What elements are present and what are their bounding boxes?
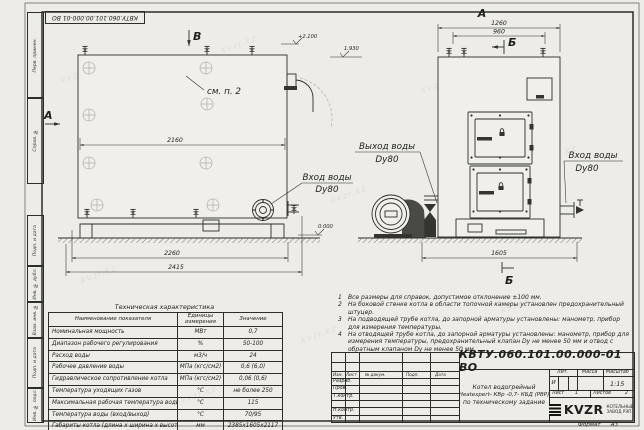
scale-value: 1:15 (610, 380, 624, 388)
doc-number: КВТУ.060.101.00.000-01 ВО (459, 353, 634, 370)
frame-box-perv-primen: Перв. примен. (27, 12, 44, 99)
frame-box-vzam-inv: Взам. инв. № (27, 301, 44, 339)
hinge (528, 199, 532, 205)
sheets-label: Листов (593, 391, 611, 396)
sheet-label: Лист (552, 391, 564, 396)
flue-outlet (284, 74, 332, 128)
dim-1605: 1605 (491, 250, 507, 257)
frame-box-inv-podl: Инв. № подл. (27, 387, 44, 423)
spec-table-title: Техническая характеристика (48, 303, 281, 311)
section-b-top-label: Б (508, 36, 516, 49)
outlet-water-label: Выход воды (359, 142, 415, 152)
row-razrab: Разраб. (333, 379, 352, 384)
spec-cell: Температура уходящих газов (49, 386, 178, 398)
row-nkontr: Н.контр. (333, 408, 354, 413)
spec-cell: 50-100 (224, 339, 282, 351)
spec-table: Наименование показателя Единицы измерени… (48, 312, 283, 430)
elevation-mid: 1.930 (344, 46, 360, 52)
mass-label: Масса (582, 370, 597, 375)
spec-cell: 2385х1605х2117 (224, 421, 282, 430)
spec-cell: % (178, 339, 224, 351)
row-utv: Утв. (333, 416, 343, 421)
frame-box-inv-dubl: Инв. № дубл. (27, 265, 44, 303)
dim-2260: 2260 (164, 250, 180, 257)
spec-cell: Номинальная мощность (49, 327, 178, 339)
side-stub-valve (287, 201, 299, 216)
spec-cell: 70/95 (224, 410, 282, 422)
spec-cell: Габариты котла (длина х ширина х высота) (49, 421, 178, 430)
spec-cell: 0,6 (6,0) (224, 362, 282, 374)
view-v-label: В (193, 30, 201, 43)
product-title: Котел водогрейный Heatexpert- КВр -0,7- … (459, 369, 549, 422)
spec-header: Значение (224, 313, 282, 327)
lit-label: Лит. (557, 370, 568, 375)
ground (58, 238, 582, 243)
spec-cell: МПа (кгс/см2) (178, 362, 224, 374)
title-block: Изм. Лист № докум. Подп. Дата Разраб. Пр… (331, 352, 635, 423)
dim-960: 960 (493, 29, 505, 36)
blower-fan (372, 195, 426, 238)
hinge (528, 178, 532, 184)
outlet-dn-label: Dy80 (375, 155, 399, 165)
dim-2415: 2415 (168, 264, 184, 271)
doc-number-top-box: КВТУ.060.101.00.000-01 ВО (45, 11, 145, 24)
hinge (530, 145, 534, 151)
frame-box-sprav-no: Справ. № (27, 97, 44, 184)
col-list: Лист (346, 372, 357, 377)
notes-list: 1Все размеры для справок, допустимое отк… (338, 294, 632, 353)
view-a-label: А (477, 7, 487, 20)
sheet-value: 1 (575, 391, 578, 396)
dim-2160: 2160 (167, 137, 183, 144)
spec-cell: МПа (кгс/см2) (178, 374, 224, 386)
note-item: 1Все размеры для справок, допустимое отк… (338, 294, 632, 301)
spec-cell: 24 (224, 351, 282, 363)
spec-cell: 115 (224, 398, 282, 410)
company-logo: KVZR КОТЕЛЬНЫЙ ЗАВОД РЭП (549, 397, 634, 422)
spec-cell: Рабочее давление воды (49, 362, 178, 374)
company-name: КОТЕЛЬНЫЙ ЗАВОД РЭП (607, 405, 634, 415)
row-prov: Пров. (333, 386, 347, 391)
doc-number-top: КВТУ.060.101.00.000-01 ВО (52, 14, 138, 21)
safety-valve-icon (249, 46, 255, 55)
format-label: Формат А3 (578, 422, 618, 428)
section-b-bottom-label: Б (505, 274, 513, 287)
inlet-pipe (560, 200, 584, 218)
spec-cell: Расход воды (49, 351, 178, 363)
hinge (530, 124, 534, 130)
section-a-label: А (43, 109, 53, 122)
door-handle (479, 191, 494, 195)
note-item: 2На боковой стенке котла в области топоч… (338, 301, 632, 316)
dim-1260: 1260 (491, 20, 507, 27)
frame-box-podp-data-1: Подп. и дата (27, 215, 44, 267)
spec-cell: 0,06 (0,6) (224, 374, 282, 386)
spec-cell: МВт (178, 327, 224, 339)
col-izm: Изм. (333, 372, 343, 377)
spec-cell: не более 250 (224, 386, 282, 398)
spec-header: Наименование показателя (49, 313, 178, 327)
col-dokum: № докум. (365, 372, 386, 377)
spec-cell: °С (178, 386, 224, 398)
kvzr-logo-text: KVZR (564, 402, 604, 417)
spec-cell: Гидравлическое сопротивление котла (49, 374, 178, 386)
inlet-water-label: Вход воды (302, 173, 351, 183)
spec-cell: 0,7 (224, 327, 282, 339)
elevation-zero: 0.000 (318, 224, 334, 230)
frame-box-podp-data-2: Подп. и дата (27, 337, 44, 389)
col-data: Дата (435, 372, 446, 377)
scale-label: Масштаб (606, 370, 629, 375)
spec-cell: °С (178, 410, 224, 422)
inlet-dn-label: Dy80 (315, 185, 339, 195)
spec-cell: Температура воды (вход/выход) (49, 410, 178, 422)
elevation-top: +2.100 (298, 34, 318, 40)
row-tkontr: Т.контр. (333, 394, 354, 399)
outlet-pipe (424, 196, 438, 237)
spec-cell: м3/ч (178, 351, 224, 363)
inlet-water-label-right: Вход воды (568, 151, 617, 161)
col-podp: Подп. (406, 372, 419, 377)
note-item: 3На подводящей трубе котла, до запорной … (338, 316, 632, 331)
door-handle (477, 137, 492, 141)
spec-cell: Максимальная рабочая температура воды (49, 398, 178, 410)
left-view-side (78, 46, 332, 238)
drawing-sheet: kvzr.kz kvzr.kz kvzr.kz kvzr.kz kvzr.kz … (0, 0, 644, 430)
spec-cell: мм (178, 421, 224, 430)
safety-valve-icon (82, 46, 88, 55)
inlet-dn-label-right: Dy80 (575, 164, 599, 174)
kvzr-logo-mark-icon (549, 404, 561, 416)
spec-header: Единицы измерения (178, 313, 224, 327)
spec-cell: Диапазон рабочего регулирования (49, 339, 178, 351)
lit-value: И (552, 380, 556, 386)
safety-valve-icon (204, 46, 210, 55)
sheets-value: 2 (625, 391, 628, 396)
base-skid (80, 220, 284, 238)
see-note-callout: см. п. 2 (207, 87, 241, 97)
spec-cell: °С (178, 398, 224, 410)
